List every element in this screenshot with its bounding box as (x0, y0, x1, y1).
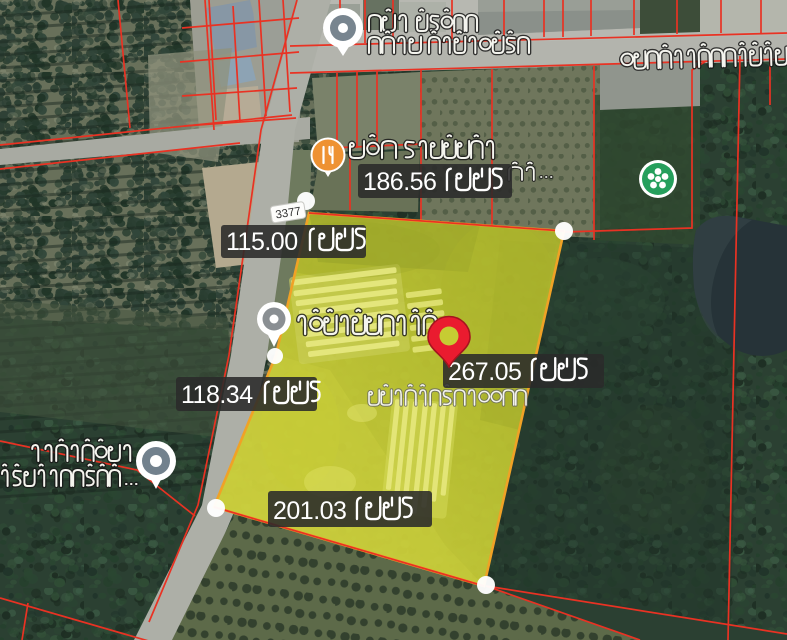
svg-text:115.00: 115.00 (226, 228, 298, 256)
svg-text:267.05: 267.05 (448, 358, 521, 386)
svg-text:186.56: 186.56 (363, 168, 436, 196)
svg-text:201.03: 201.03 (273, 497, 346, 525)
svg-text:118.34: 118.34 (181, 381, 253, 409)
